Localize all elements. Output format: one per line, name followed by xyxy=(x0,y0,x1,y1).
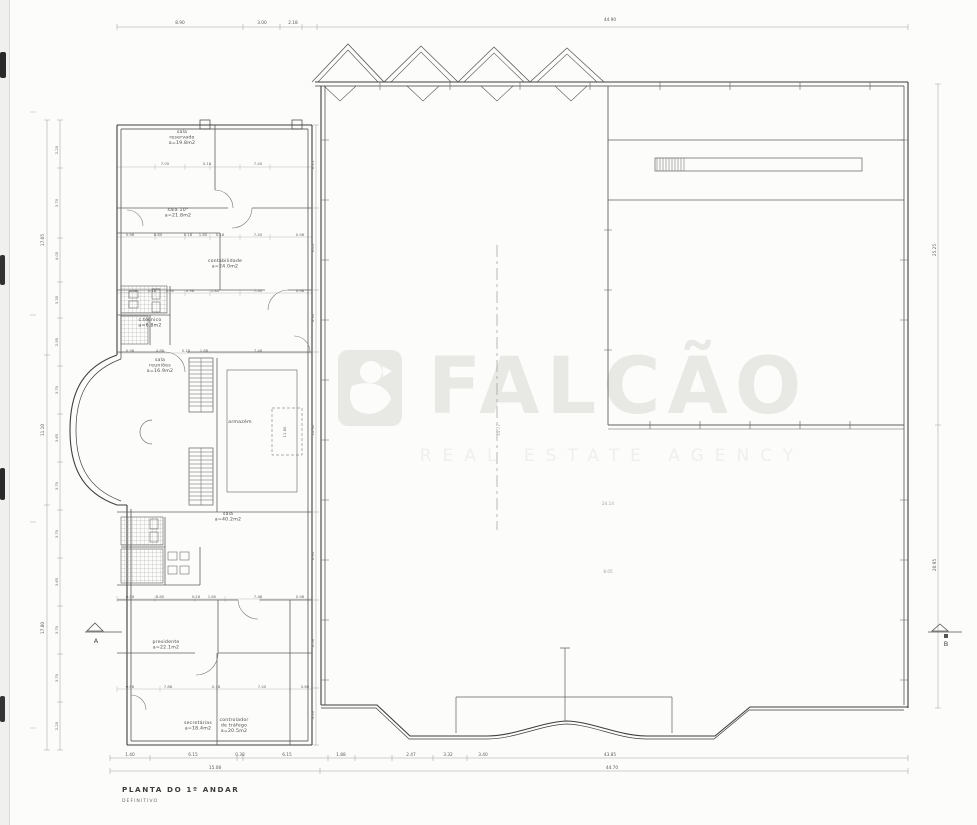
floor-plan-drawing: FALCÃO REAL ESTATE AGENCY xyxy=(0,0,977,825)
room-label: a=20.5m2 xyxy=(221,728,247,734)
dim-label: 7.48 xyxy=(254,594,263,599)
title-block: PLANTA DO 1º ANDAR DEFINITIVO xyxy=(122,785,239,804)
dim-label: 0.98 xyxy=(296,288,305,293)
dim-label: 0.18 xyxy=(216,232,225,237)
dim-label: 8.90 xyxy=(175,20,185,26)
dim-label: 0.98 xyxy=(126,348,135,353)
section-marker-a-label: A xyxy=(94,637,99,645)
dim-label: 3.32 xyxy=(443,752,453,758)
dim-label: 1.80 xyxy=(211,288,220,293)
dim-label: 3.35 xyxy=(54,295,59,304)
dim-label: 0.80 xyxy=(301,684,310,689)
dim-label: 8.05 xyxy=(603,569,613,574)
dim-label: 6.05 xyxy=(310,243,315,252)
crane-beam-hatch xyxy=(657,158,684,171)
dim-label: 2.95 xyxy=(54,337,59,346)
dim-label: 14.77 xyxy=(496,424,501,436)
watermark: FALCÃO REAL ESTATE AGENCY xyxy=(338,340,808,466)
dim-label: 7.88 xyxy=(164,684,173,689)
dim-label: 1.88 xyxy=(336,752,346,758)
dim-label: 3.70 xyxy=(54,385,59,394)
dim-label: 1.80 xyxy=(199,232,208,237)
wc-tiled-areas xyxy=(121,286,167,583)
dim-label: 8.80 xyxy=(156,594,165,599)
dim-label: 8.80 xyxy=(154,232,163,237)
dim-label: 17.05 xyxy=(40,234,46,247)
dim-label: 6.30 xyxy=(310,551,315,560)
dim-label: 0.98 xyxy=(126,684,135,689)
accordion-door xyxy=(140,420,152,444)
dim-label: 15.08 xyxy=(209,765,222,771)
room-label: a=24.0m2 xyxy=(212,264,238,270)
dim-label: 7.40 xyxy=(254,161,263,166)
dim-label: 3.70 xyxy=(54,673,59,682)
dim-label: 11.10 xyxy=(40,424,46,437)
room-label: armazém xyxy=(228,418,252,425)
room-label: de tráfego xyxy=(221,722,247,729)
room-label: a=16.9m2 xyxy=(147,368,173,374)
dim-label: 3.00 xyxy=(257,20,267,26)
dim-label: 0.18 xyxy=(192,594,201,599)
curved-bay-wall xyxy=(70,355,117,505)
dim-label: 2.20 xyxy=(54,721,59,730)
dim-label: 0.18 xyxy=(212,684,221,689)
room-label: sala xyxy=(155,357,165,363)
dim-label: 0.98 xyxy=(126,232,135,237)
gate-post xyxy=(560,648,570,721)
dim-label: 2.18 xyxy=(288,20,298,26)
dim-label: 7.40 xyxy=(254,232,263,237)
sawtooth-roof xyxy=(312,44,604,101)
dim-label: 3.65 xyxy=(54,577,59,586)
dim-label: 43.85 xyxy=(604,752,617,758)
drawing-title: PLANTA DO 1º ANDAR xyxy=(122,785,239,794)
binder-hole-mark xyxy=(0,52,6,78)
room-label: a=22.1m2 xyxy=(153,645,179,651)
dim-label: 17.80 xyxy=(40,622,46,635)
dim-label: 6.50 xyxy=(310,638,315,647)
dim-label: 4.20 xyxy=(310,710,315,719)
dim-label: 0.98 xyxy=(126,594,135,599)
dim-label: 1.40 xyxy=(125,752,135,758)
room-label: controlador xyxy=(219,717,248,723)
room-label: a=21.8m2 xyxy=(165,213,191,219)
room-label: secretárias xyxy=(184,719,212,726)
dim-label: 3.70 xyxy=(54,529,59,538)
dim-label: 6.15 xyxy=(310,160,315,169)
dim-label: 2.30 xyxy=(166,288,175,293)
crane-beam xyxy=(655,158,862,171)
room-label: reuniões xyxy=(149,363,171,369)
dim-label: 0.18 xyxy=(203,161,212,166)
dim-label: 4.30 xyxy=(310,313,315,322)
dim-label: 1.80 xyxy=(208,594,217,599)
stairs-lower xyxy=(189,448,213,505)
stairs-upper xyxy=(189,358,213,412)
dim-label: 3.70 xyxy=(54,198,59,207)
room-label: contabilidade xyxy=(208,258,242,264)
dim-label: 0.18 xyxy=(148,288,157,293)
dashed-zone xyxy=(272,408,302,455)
dim-label: 24.14 xyxy=(602,501,614,506)
dim-label: 0.18 xyxy=(182,348,191,353)
drawing-subtitle: DEFINITIVO xyxy=(122,798,158,804)
binder-hole-mark xyxy=(0,468,5,500)
falcon-logo xyxy=(338,350,402,426)
room-label: a=6.8m2 xyxy=(138,323,161,329)
dim-label: 7.05 xyxy=(161,161,170,166)
dim-label: 4.88 xyxy=(156,348,165,353)
dim-label: 7.40 xyxy=(254,288,263,293)
dim-label: 3.70 xyxy=(54,481,59,490)
dim-label: 0.38 xyxy=(235,752,245,758)
dim-label: 44.70 xyxy=(606,765,619,771)
dim-label: 20.95 xyxy=(932,559,938,572)
room-label: sala 10° xyxy=(168,207,189,213)
dim-label: 7.40 xyxy=(258,684,267,689)
scan-artifacts xyxy=(0,0,36,825)
binder-hole-mark xyxy=(0,255,5,285)
dim-label: 6.15 xyxy=(282,752,292,758)
room-label: a=40.2m2 xyxy=(215,517,241,523)
dim-label: 1.88 xyxy=(200,348,209,353)
watermark-brand: FALCÃO xyxy=(428,340,808,432)
section-marker-a: A xyxy=(85,623,122,645)
section-marker-b-label: B xyxy=(944,640,948,648)
scanned-floor-plan: FALCÃO REAL ESTATE AGENCY xyxy=(0,0,977,825)
dim-label: 4.05 xyxy=(54,251,59,260)
room-label: a=19.8m2 xyxy=(169,140,195,146)
dim-label: 6.15 xyxy=(188,752,198,758)
dim-label: 11.80 xyxy=(282,426,287,437)
room-labels: salareservadoa=19.8m2sala 10°a=21.8m2con… xyxy=(138,129,252,734)
room-label: sala xyxy=(177,129,187,135)
dim-label: 0.98 xyxy=(186,288,195,293)
binder-hole-mark xyxy=(0,696,5,722)
dim-label: 3.65 xyxy=(54,433,59,442)
watermark-tagline: REAL ESTATE AGENCY xyxy=(420,446,804,466)
loading-platform xyxy=(456,697,672,733)
dim-label: 0.18 xyxy=(184,232,193,237)
dim-label: 2.20 xyxy=(54,145,59,154)
dim-label: 12.40 xyxy=(310,424,315,435)
dim-label: 1.48 xyxy=(129,288,138,293)
dim-label: 3.40 xyxy=(478,752,488,758)
dim-label: 0.98 xyxy=(296,232,305,237)
dim-label: 44.90 xyxy=(604,17,617,23)
dim-label: 2.47 xyxy=(406,752,416,758)
dim-label: 25.25 xyxy=(932,244,938,257)
dim-label: 3.70 xyxy=(54,625,59,634)
room-label: sala xyxy=(223,511,233,517)
room-label: c.técnico xyxy=(139,316,162,323)
room-label: presidente xyxy=(153,639,180,645)
dim-label: 0.98 xyxy=(296,594,305,599)
room-label: a=18.4m2 xyxy=(185,726,211,732)
room-label: reservado xyxy=(169,135,194,141)
dim-label: 7.48 xyxy=(254,348,263,353)
section-marker-b: B xyxy=(928,624,962,648)
